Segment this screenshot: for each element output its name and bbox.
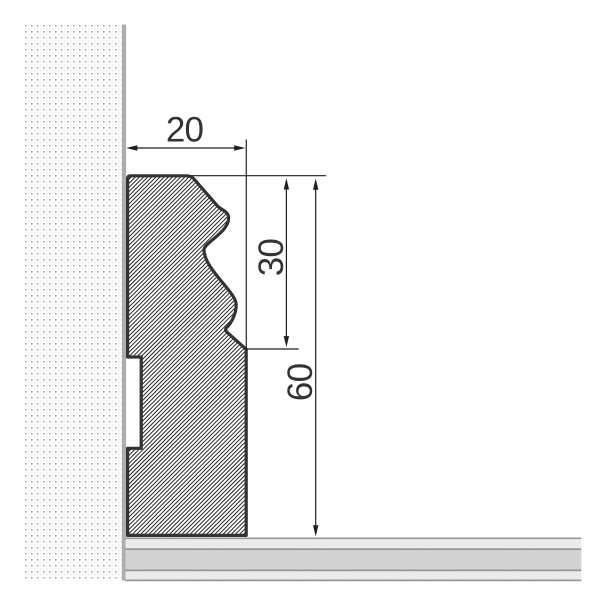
svg-text:60: 60: [281, 363, 320, 401]
svg-text:30: 30: [252, 239, 291, 277]
svg-text:20: 20: [166, 111, 204, 150]
